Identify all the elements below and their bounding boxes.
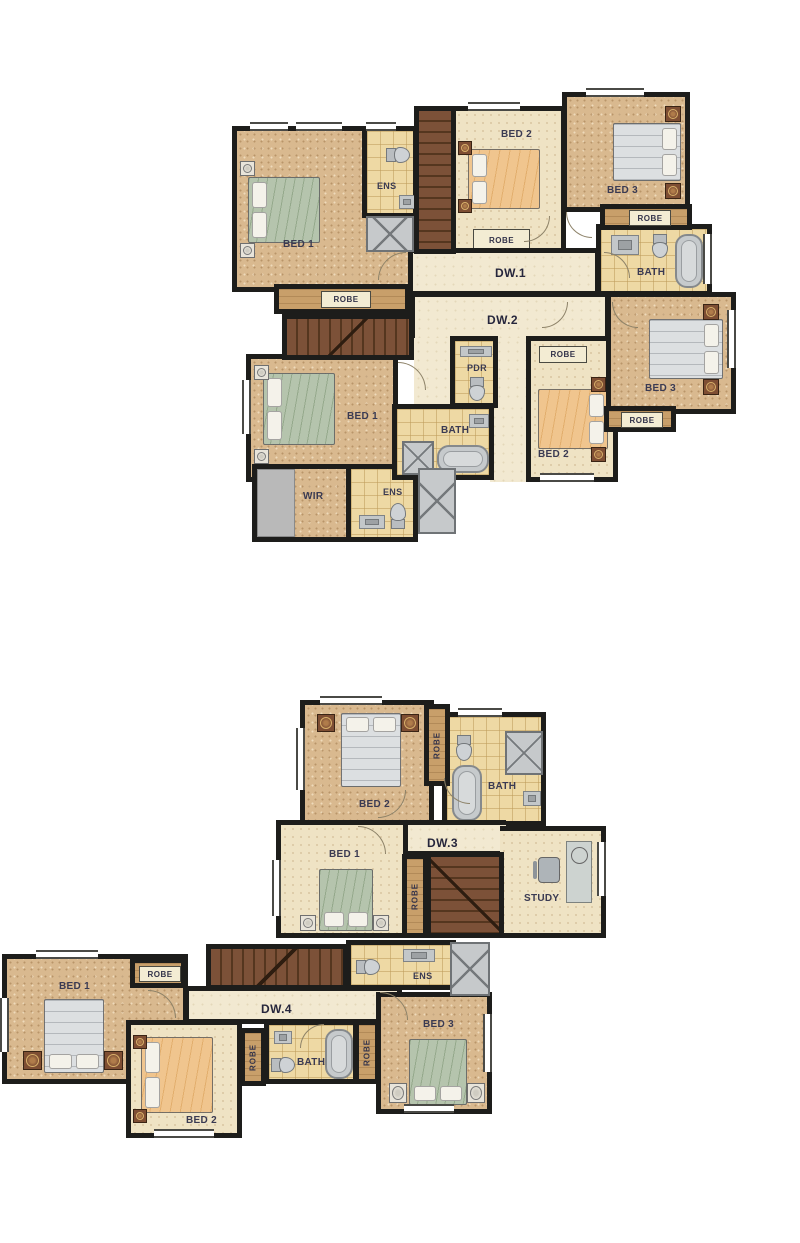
window bbox=[320, 696, 382, 705]
room-label: BED 2 bbox=[186, 1115, 217, 1126]
dw4-bath-robe: ROBE bbox=[354, 1020, 380, 1084]
double-bed bbox=[341, 713, 401, 787]
bedside-table bbox=[317, 714, 335, 732]
dw1-hallway: DW.1 bbox=[408, 248, 600, 296]
window bbox=[250, 122, 288, 131]
bedside-table bbox=[401, 714, 419, 732]
robe-label: ROBE bbox=[621, 412, 663, 428]
vanity bbox=[403, 949, 435, 962]
bedside-table bbox=[240, 243, 255, 258]
room-label: WIR bbox=[303, 491, 323, 502]
bedside-table bbox=[23, 1051, 42, 1070]
room-label: ENS bbox=[377, 181, 396, 191]
robe-label: ROBE bbox=[407, 859, 423, 933]
bedside-table bbox=[458, 141, 472, 155]
window bbox=[540, 473, 594, 482]
bedside-table bbox=[104, 1051, 123, 1070]
bedside-table bbox=[703, 304, 719, 320]
double-bed bbox=[141, 1037, 213, 1113]
dwelling-label: DW.4 bbox=[261, 1002, 292, 1016]
toilet bbox=[386, 146, 410, 164]
double-bed bbox=[538, 389, 608, 449]
dw2-wir-room: WIR bbox=[252, 464, 354, 542]
room-label: ENS bbox=[413, 971, 432, 981]
window bbox=[272, 860, 281, 916]
double-bed bbox=[263, 373, 335, 445]
toilet bbox=[468, 377, 486, 401]
dw4-bed2-room: BED 2 bbox=[126, 1020, 242, 1138]
dw1-bed2-room: BED 2 ROBE bbox=[450, 106, 566, 256]
dw3-hallway: DW.3 bbox=[402, 820, 506, 856]
toilet bbox=[356, 958, 380, 976]
staircase bbox=[206, 944, 348, 990]
toilet bbox=[271, 1056, 295, 1074]
bedside-table bbox=[254, 449, 269, 464]
shower bbox=[505, 731, 543, 775]
floor-plan-canvas: BED 1 ENS BED 2 ROBE BED 3 ROBE BATH DW.… bbox=[0, 0, 800, 1243]
window bbox=[703, 234, 712, 284]
window bbox=[404, 1104, 454, 1113]
shower bbox=[366, 216, 414, 252]
dw2-bed1-room: BED 1 bbox=[246, 354, 398, 482]
bathtub bbox=[325, 1029, 353, 1079]
window bbox=[586, 88, 644, 97]
bedside-table bbox=[133, 1035, 147, 1049]
robe-label: ROBE bbox=[629, 210, 671, 226]
window bbox=[366, 122, 396, 131]
dw4-bed1-robe: ROBE bbox=[130, 958, 186, 988]
room-label: BATH bbox=[441, 425, 469, 436]
dw1-bed3-room: BED 3 bbox=[562, 92, 690, 212]
bedside-table bbox=[240, 161, 255, 176]
staircase bbox=[414, 106, 456, 254]
dw4-hallway: DW.4 bbox=[184, 986, 402, 1024]
room-label: BED 3 bbox=[607, 185, 638, 196]
bedside-table bbox=[373, 915, 389, 931]
bedside-table bbox=[458, 199, 472, 213]
room-label: BATH bbox=[488, 781, 516, 792]
dwelling-label: DW.3 bbox=[427, 836, 458, 850]
dw1-ensuite-room: ENS bbox=[362, 126, 418, 218]
room-label: BED 2 bbox=[501, 129, 532, 140]
window bbox=[468, 102, 520, 111]
window bbox=[154, 1129, 214, 1138]
bedside-table bbox=[300, 915, 316, 931]
dw2-bed3-robe: ROBE bbox=[604, 406, 676, 432]
vanity bbox=[274, 1031, 292, 1044]
window bbox=[483, 1014, 492, 1072]
room-label: BED 1 bbox=[283, 239, 314, 250]
bedside-table bbox=[591, 447, 606, 462]
robe-label: ROBE bbox=[245, 1033, 261, 1081]
robe-label: ROBE bbox=[359, 1025, 375, 1079]
shower bbox=[418, 468, 456, 534]
dw1-bed3-robe: ROBE bbox=[600, 204, 692, 230]
window bbox=[296, 728, 305, 790]
window bbox=[36, 950, 98, 959]
room-label: BED 3 bbox=[423, 1019, 454, 1030]
vanity bbox=[359, 515, 385, 529]
window bbox=[0, 998, 9, 1052]
dw3-study-room: STUDY bbox=[500, 826, 606, 938]
bedside-table bbox=[389, 1083, 407, 1103]
window bbox=[597, 842, 606, 896]
double-bed bbox=[409, 1039, 467, 1105]
bathtub bbox=[675, 234, 703, 288]
dw2-hallway: DW.2 bbox=[410, 292, 610, 342]
window bbox=[296, 122, 342, 131]
double-bed bbox=[613, 123, 681, 181]
dw3-bed1-room: BED 1 bbox=[276, 820, 408, 938]
vanity bbox=[469, 414, 489, 428]
robe-label: ROBE bbox=[139, 966, 181, 982]
toilet bbox=[455, 735, 473, 761]
window bbox=[727, 310, 736, 368]
window bbox=[458, 708, 502, 717]
double-bed bbox=[649, 319, 723, 379]
dw4-ensuite-room: ENS bbox=[346, 940, 456, 990]
room-label: BED 2 bbox=[538, 449, 569, 460]
staircase bbox=[426, 852, 504, 938]
room-label: BATH bbox=[637, 267, 665, 278]
staircase bbox=[282, 314, 414, 360]
vanity bbox=[523, 791, 541, 806]
double-bed bbox=[44, 999, 104, 1073]
vanity bbox=[611, 235, 639, 255]
robe-label: ROBE bbox=[539, 346, 587, 363]
vanity bbox=[460, 346, 492, 357]
double-bed bbox=[319, 869, 373, 931]
double-bed bbox=[248, 177, 320, 243]
dw3-bed2-room: BED 2 bbox=[300, 700, 434, 826]
room-label: BATH bbox=[297, 1057, 325, 1068]
office-chair bbox=[538, 857, 560, 883]
robe-label: ROBE bbox=[429, 709, 445, 781]
dwelling-label: DW.2 bbox=[487, 313, 518, 327]
room-label: BED 1 bbox=[59, 981, 90, 992]
wir-shelving bbox=[257, 469, 295, 537]
bedside-table bbox=[133, 1109, 147, 1123]
bedside-table bbox=[254, 365, 269, 380]
bedside-table bbox=[703, 379, 719, 395]
toilet bbox=[389, 503, 407, 529]
room-label: STUDY bbox=[524, 893, 559, 904]
bedside-table bbox=[665, 106, 681, 122]
toilet bbox=[651, 234, 669, 258]
double-bed bbox=[468, 149, 540, 209]
dw3-bed1-robe: ROBE bbox=[402, 854, 428, 938]
room-label: ENS bbox=[383, 487, 402, 497]
dw3-bed2-robe: ROBE bbox=[424, 704, 450, 786]
shower bbox=[450, 942, 490, 996]
desk bbox=[566, 841, 592, 903]
bedside-table bbox=[467, 1083, 485, 1103]
room-label: PDR bbox=[467, 363, 487, 373]
dw3-bath-room: BATH bbox=[442, 712, 546, 826]
bedside-table bbox=[665, 183, 681, 199]
dw1-bed1-robe: ROBE bbox=[274, 284, 410, 314]
room-label: BED 3 bbox=[645, 383, 676, 394]
room-label: BED 1 bbox=[347, 411, 378, 422]
dw4-bed2-robe: ROBE bbox=[240, 1028, 266, 1086]
window bbox=[242, 380, 251, 434]
room-label: BED 1 bbox=[329, 849, 360, 860]
robe-label: ROBE bbox=[321, 291, 371, 308]
dw2-powder-room: PDR bbox=[450, 336, 498, 408]
door-arc bbox=[566, 212, 592, 238]
bedside-table bbox=[591, 377, 606, 392]
dwelling-label: DW.1 bbox=[495, 266, 526, 280]
vanity bbox=[399, 195, 415, 209]
